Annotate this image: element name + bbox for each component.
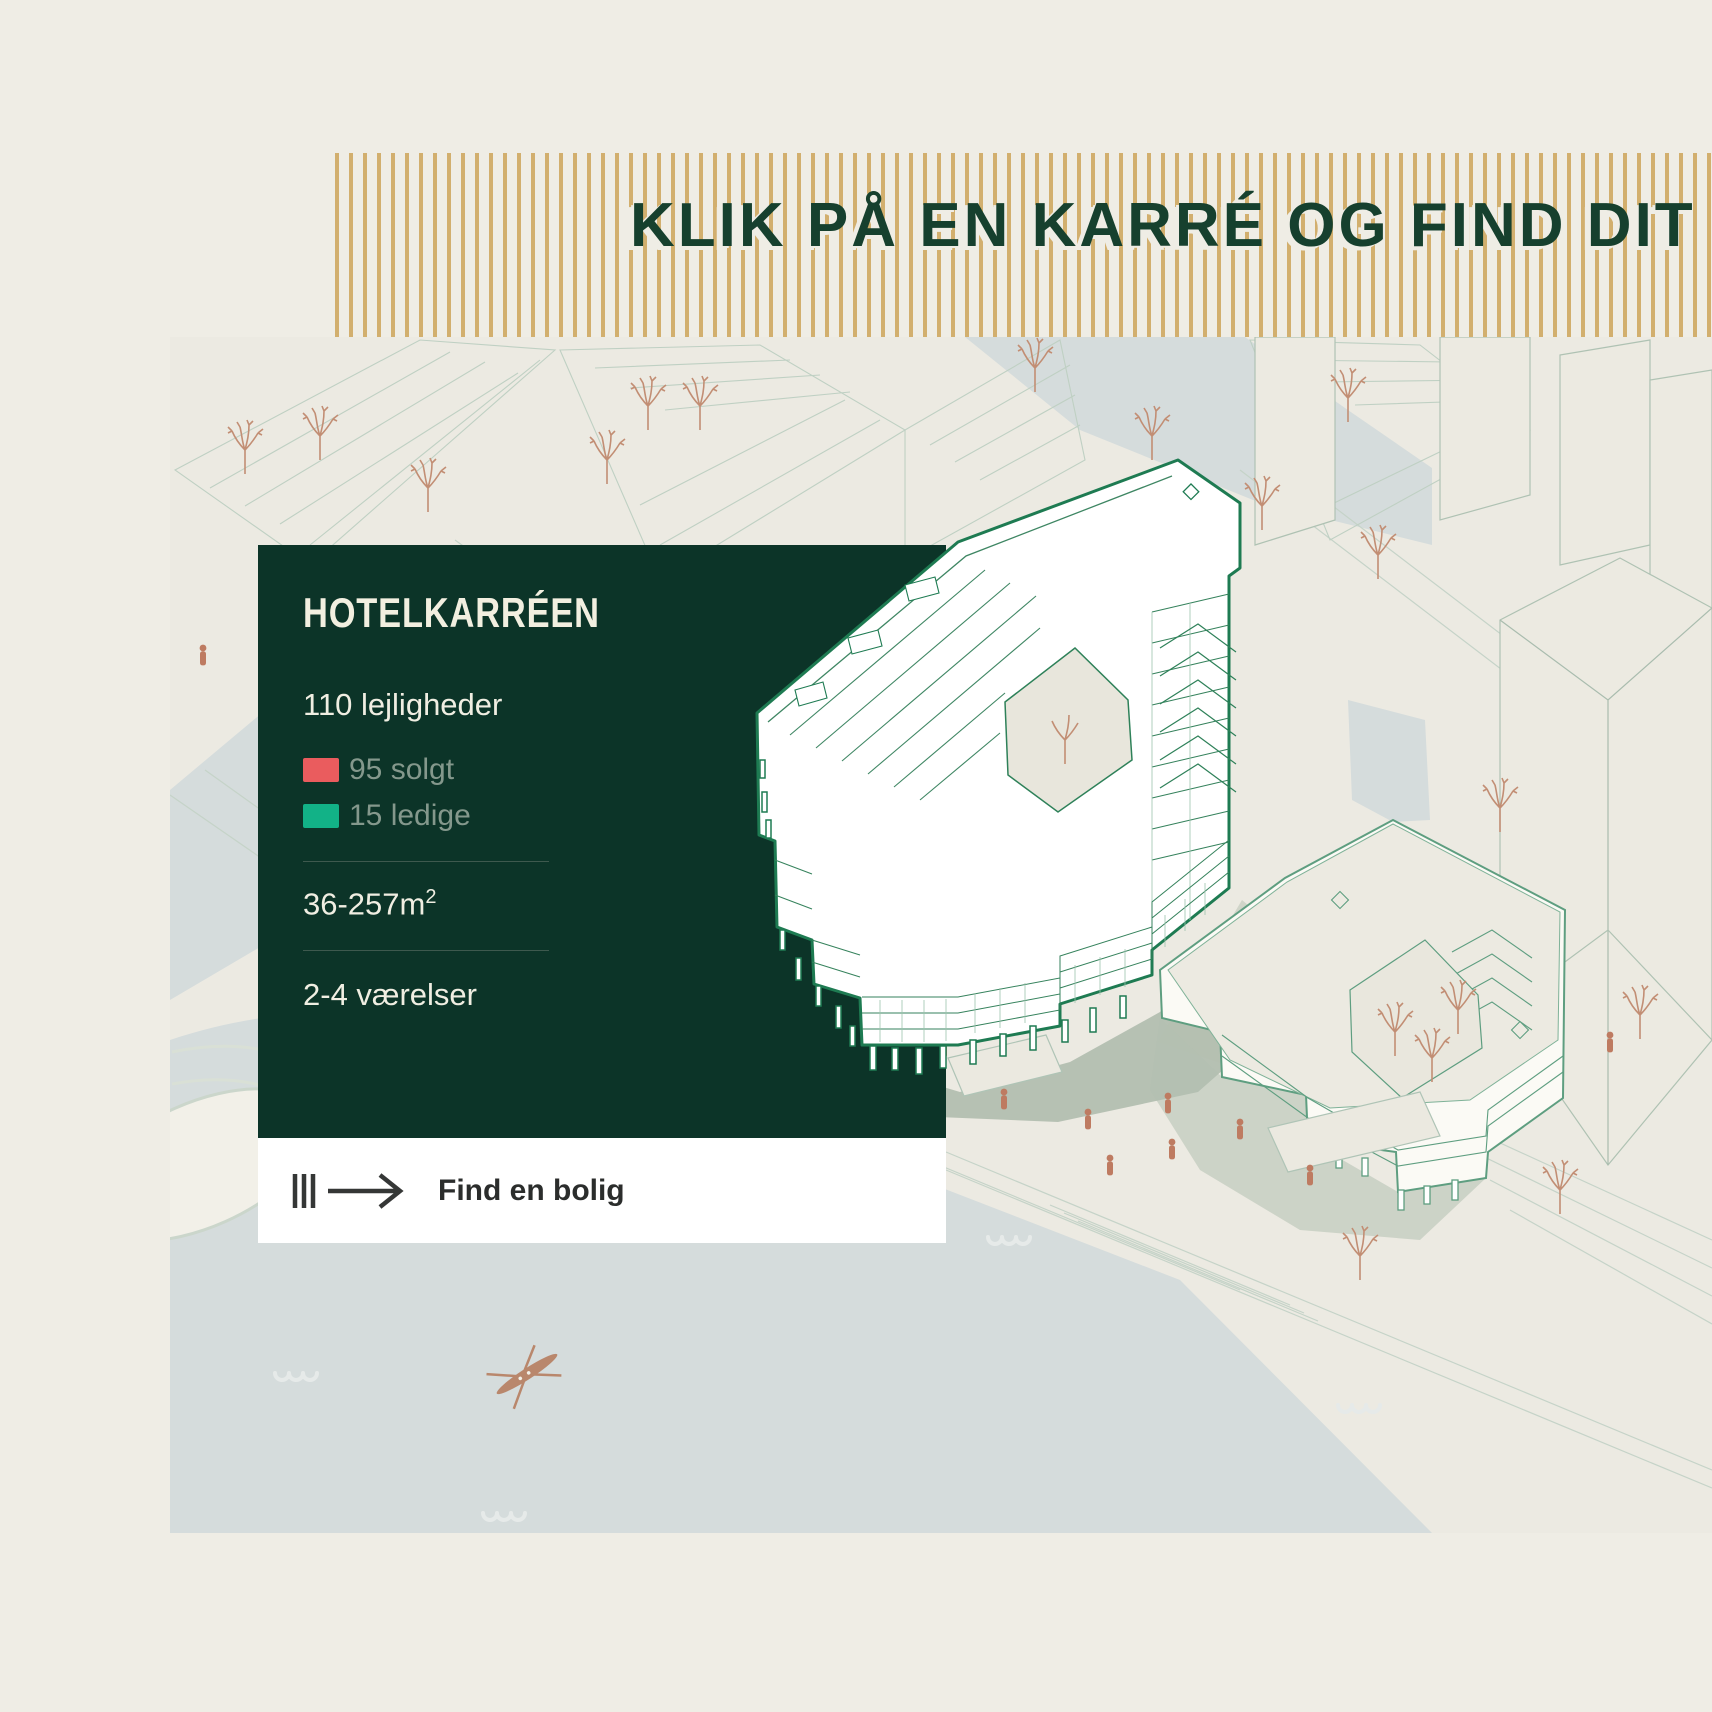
arrow-right-icon	[328, 1175, 400, 1207]
divider	[303, 950, 549, 951]
cta-label: Find en bolig	[438, 1174, 625, 1208]
find-housing-button[interactable]: Find en bolig	[258, 1138, 946, 1243]
divider	[303, 861, 549, 862]
available-swatch	[303, 804, 339, 828]
available-label: 15 ledige	[349, 799, 471, 833]
square-meter-superscript: 2	[425, 886, 436, 908]
building-outline	[757, 460, 1240, 1045]
sold-label: 95 solgt	[349, 753, 454, 787]
hotelkarreen-building[interactable]	[700, 440, 1360, 1140]
page-title: KLIK PÅ EN KARRÉ OG FIND DIT NYE HJEM	[630, 190, 1712, 261]
track-arrow-icon	[292, 1169, 412, 1213]
track-bars-icon	[295, 1174, 313, 1208]
sold-swatch	[303, 758, 339, 782]
page: { "banner": { "title": "KLIK PÅ EN KARRÉ…	[0, 0, 1712, 1712]
